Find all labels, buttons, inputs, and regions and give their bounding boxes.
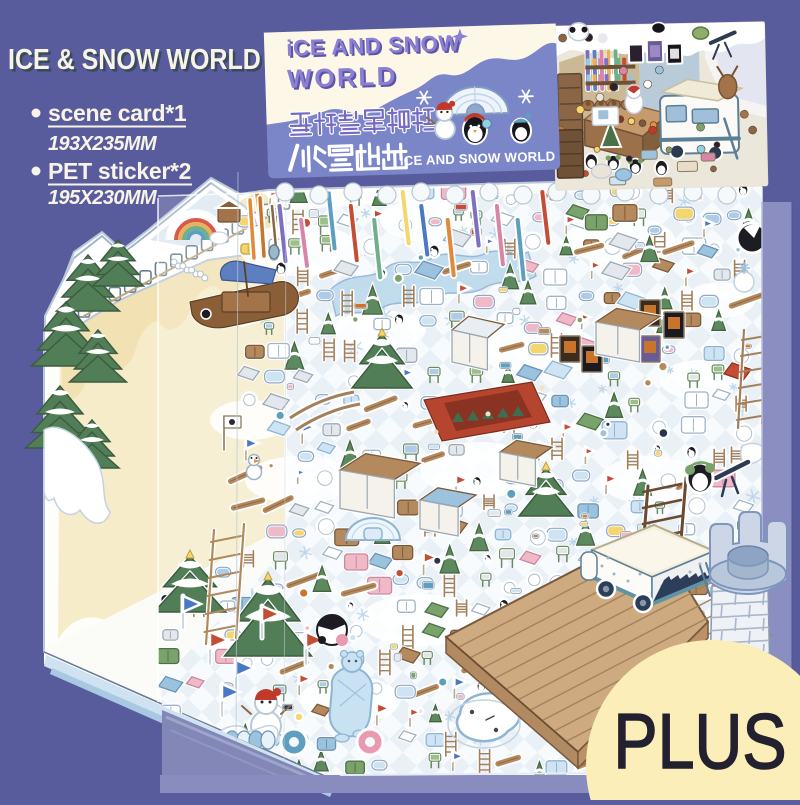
svg-text:ICE & SNOW WORLD: ICE & SNOW WORLD — [8, 43, 261, 75]
svg-text:193X235MM: 193X235MM — [48, 133, 158, 155]
svg-text:WORLD: WORLD — [287, 60, 399, 93]
svg-text:PLUS: PLUS — [613, 698, 786, 785]
svg-text:195X230MM: 195X230MM — [48, 187, 158, 209]
svg-text:PET sticker*2: PET sticker*2 — [48, 158, 191, 184]
svg-text:scene card*1: scene card*1 — [48, 100, 187, 126]
